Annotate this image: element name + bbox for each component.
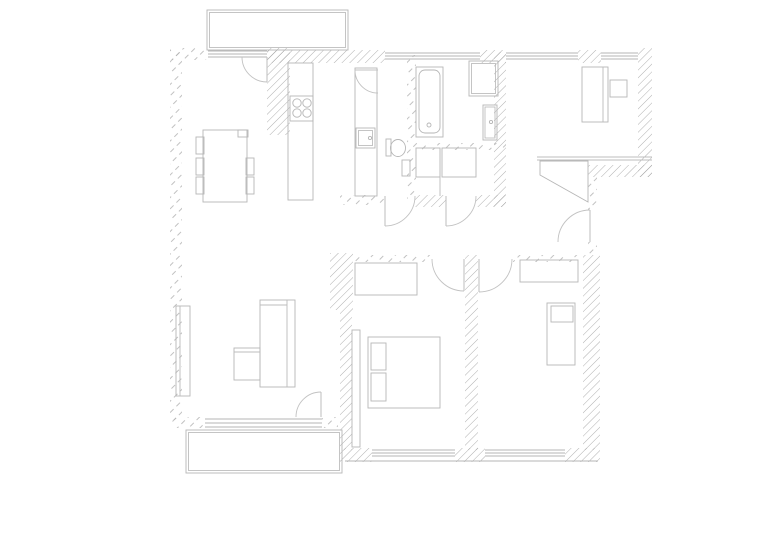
wall-entry-top	[588, 165, 652, 177]
terrace	[186, 430, 342, 473]
floor-plan-drawing	[0, 0, 778, 550]
desk	[582, 67, 608, 122]
washing-machine	[469, 61, 498, 96]
wall-top-1	[267, 50, 385, 63]
door-entry-swing-arc	[558, 210, 590, 242]
bathtub-inner	[419, 70, 440, 133]
kitchen-counter-1	[288, 63, 313, 200]
dining-table	[203, 130, 247, 202]
wall-bottom-pier-2	[455, 448, 485, 462]
wall-entry-side-upper	[588, 177, 597, 210]
sofa-chaise	[234, 348, 260, 380]
door-wc-swing-arc	[355, 70, 378, 93]
window-bathroom	[385, 53, 480, 59]
wall-bath-bottom-2	[476, 195, 506, 207]
door-kitchen-balcony-swing-arc	[242, 57, 267, 82]
wardrobe-bedroom2	[520, 260, 578, 282]
door-bedroom1	[432, 259, 464, 291]
wall-bedroom2-top	[513, 255, 583, 262]
door-entry	[558, 210, 590, 242]
door-bathroom-2-swing-arc	[446, 196, 476, 226]
wall-right	[638, 48, 652, 177]
washbasin-faucet	[489, 120, 492, 123]
wall-bottom-pier-3	[565, 448, 600, 462]
door-bathroom-1	[385, 196, 415, 226]
sofa-main	[260, 300, 295, 387]
chair-head	[238, 130, 248, 137]
window-office-1	[506, 53, 578, 59]
bathroom-vanity	[442, 148, 476, 177]
window-bedroom1	[372, 450, 455, 456]
burner-1	[293, 99, 301, 107]
toilet-bowl	[391, 140, 406, 157]
wall-between-bedrooms	[465, 255, 478, 450]
wall-living-bottom-left	[170, 417, 205, 428]
door-living-terrace-swing-arc	[296, 392, 321, 417]
wall-bottom-pier-1	[340, 448, 372, 462]
floor-plan-canvas	[0, 0, 778, 550]
burner-3	[293, 109, 301, 117]
pillow-3	[551, 306, 573, 322]
window-living	[205, 419, 322, 427]
door-bedroom1-swing-arc	[432, 259, 464, 291]
wall-living-bottom-right	[322, 417, 338, 428]
door-bedroom2-swing-arc	[479, 259, 512, 292]
window-balcony-door-threshold	[208, 51, 267, 57]
wall-bath-bottom-1	[415, 195, 446, 207]
shelf-bedroom1	[352, 330, 360, 447]
sink-faucet	[368, 136, 371, 139]
door-bedroom2	[479, 259, 512, 292]
door-wc	[355, 70, 378, 93]
wall-bedroom1-top	[352, 255, 433, 262]
door-bathroom-2	[446, 196, 476, 226]
entry-wardrobe	[540, 161, 588, 202]
bed-double	[368, 337, 440, 408]
wall-bath-partition	[416, 143, 506, 150]
washbasin	[483, 105, 497, 140]
shower-tray	[416, 148, 440, 177]
door-living-terrace	[296, 392, 321, 417]
burner-2	[303, 99, 311, 107]
bathtub-drain	[427, 123, 431, 127]
wall-bedroom2-right	[583, 255, 600, 450]
door-bathroom-1-swing-arc	[385, 196, 415, 226]
balcony	[207, 10, 348, 50]
wall-wc-bottom	[340, 195, 385, 205]
kitchen-sink	[356, 128, 375, 148]
wall-wc-right	[407, 55, 416, 200]
window-office-2	[601, 53, 638, 59]
door-kitchen-balcony	[242, 57, 267, 82]
walls-layer	[170, 48, 652, 462]
wall-top-pier	[578, 50, 601, 63]
burner-4	[303, 109, 311, 117]
wall-bedroom1-left	[340, 310, 352, 450]
window-bedroom2	[485, 450, 565, 456]
wall-entry-side-lower	[588, 242, 597, 255]
wall-top-left	[170, 48, 208, 60]
wardrobe-bedroom1	[355, 263, 417, 295]
pillow-1	[371, 343, 386, 370]
pillow-2	[371, 373, 386, 401]
wall-bedroom1-corner	[330, 253, 353, 310]
desk-chair	[610, 80, 627, 97]
